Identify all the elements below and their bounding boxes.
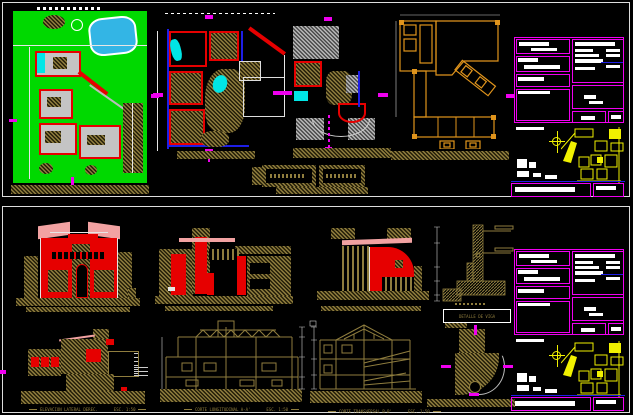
text-bar [575, 59, 603, 63]
bedroom [209, 31, 239, 61]
fence-elevation [319, 165, 365, 187]
text-bar [575, 49, 593, 52]
furniture [45, 131, 61, 143]
edge-line [369, 247, 370, 291]
info-box [572, 85, 624, 109]
window [250, 279, 270, 289]
text-bar [575, 271, 603, 275]
stair-rail [134, 367, 148, 379]
text-bar [518, 270, 538, 274]
roof-cap [331, 228, 355, 239]
deck-line [132, 103, 133, 173]
caption-text: ELEVACION LATERAL DEREC. [40, 407, 98, 412]
window-band [52, 252, 106, 259]
section-marker [378, 93, 388, 97]
newel-circle [469, 381, 481, 393]
road-hatch [11, 185, 149, 194]
side-wall [414, 266, 422, 291]
ground-line [26, 307, 130, 312]
detail-label: DETALLE DE VIGA [459, 314, 495, 319]
legend-mark [533, 173, 541, 177]
text-bar [606, 266, 620, 269]
title-block [509, 241, 629, 413]
text-bar [516, 339, 544, 342]
caption: CORTE TRANSVERSAL B-B' ESC. 1:50 [328, 409, 441, 414]
edge-line [117, 238, 118, 298]
text-bar [606, 65, 620, 68]
legend-mark [517, 385, 529, 391]
text-bar [606, 261, 620, 264]
divider-line [511, 395, 625, 396]
text-bar [606, 54, 620, 57]
caption-text: CORTE TRANSVERSAL B-B' [339, 409, 392, 414]
door [76, 264, 88, 298]
legend-mark [517, 171, 529, 177]
window-band [382, 277, 414, 291]
axis-marker [474, 325, 477, 335]
window-band [209, 249, 239, 260]
text-bar [581, 328, 595, 332]
planter [39, 163, 53, 174]
text-bar [606, 49, 620, 52]
text-bar [518, 58, 538, 62]
foundation-plan [394, 13, 512, 153]
caption-scale: ESC. 1:50 [408, 409, 430, 414]
beam-detail: DETALLE DE VIGA [431, 223, 518, 329]
furniture [47, 97, 61, 107]
legend-mark [545, 389, 557, 393]
ground-line [16, 298, 140, 306]
ground-strip [177, 151, 255, 159]
rear-elevation [151, 216, 298, 312]
text-bar [575, 279, 595, 282]
section-marker [71, 177, 74, 185]
text-bar [518, 303, 550, 306]
cad-drawing-canvas: DETALLE DE VIGA ELEVACION LATERAL DEREC.… [0, 0, 633, 415]
sheet-plans [2, 2, 630, 197]
window [168, 287, 175, 291]
text-bar [611, 327, 621, 331]
tree [43, 15, 65, 29]
roof-hatch [293, 26, 339, 59]
roof-edge [179, 238, 235, 242]
ground-strip [293, 148, 391, 158]
ground-floor-plan [157, 13, 291, 163]
wall-segment [248, 26, 286, 55]
legend-mark [545, 175, 557, 179]
ground-line [155, 296, 293, 304]
caption: CORTE LONGITUDINAL A-A' ESC. 1:50 [184, 407, 299, 412]
text-bar [581, 116, 595, 120]
signature-line [601, 274, 623, 275]
landing-hatch [459, 329, 485, 353]
centerline [328, 115, 330, 151]
window [41, 357, 49, 367]
longitudinal-section: CORTE LONGITUDINAL A-A' ESC. 1:50 [156, 319, 306, 415]
wall-hatch [48, 270, 68, 292]
window [250, 263, 270, 274]
plan-title-text [37, 7, 101, 10]
entry-steps [201, 131, 229, 147]
text-bar [575, 42, 615, 46]
ground-line [165, 306, 273, 311]
legend-mark [529, 376, 536, 382]
legend-mark [533, 387, 541, 391]
window-line [241, 31, 243, 61]
dimension-line [29, 47, 30, 179]
stair-detail [439, 329, 517, 401]
site-plan [9, 7, 151, 195]
text-bar [584, 307, 596, 311]
caption-scale: ESC. 1:50 [266, 407, 288, 412]
dimension-line [157, 31, 158, 151]
legend-mark [517, 373, 527, 382]
text-bar [596, 400, 616, 404]
section-marker [205, 15, 213, 19]
text-bar [575, 254, 615, 258]
sheet-elevations: DETALLE DE VIGA ELEVACION LATERAL DEREC.… [2, 206, 630, 413]
furniture [87, 135, 105, 145]
edge-line [40, 238, 41, 298]
window [395, 260, 403, 268]
caption: ELEVACION LATERAL DEREC. ESC. 1:50 [29, 407, 146, 412]
dimension-line [165, 13, 275, 14]
side-elevation [311, 216, 431, 312]
ground-line [317, 291, 429, 300]
front-elevation [16, 214, 140, 312]
location-map [561, 341, 627, 397]
lateral-elevation: ELEVACION LATERAL DEREC. ESC. 1:50 [11, 321, 151, 413]
text-bar [584, 95, 596, 99]
text-bar [515, 187, 575, 192]
fountain [71, 19, 83, 31]
text-bar [518, 77, 544, 81]
beam-detail-linework [431, 223, 518, 303]
bath-fixture [294, 91, 308, 101]
text-bar [515, 401, 575, 406]
location-map [561, 127, 627, 183]
axis-marker [469, 393, 479, 396]
text-bar [518, 91, 550, 94]
text-bar [524, 277, 560, 281]
furniture [53, 57, 67, 69]
text-bar [531, 48, 557, 51]
text-bar [524, 65, 560, 69]
bedroom [169, 109, 205, 145]
wall-hatch [94, 270, 114, 292]
planter [85, 165, 97, 175]
foundation-linework [394, 13, 512, 149]
text-bar [596, 186, 616, 190]
text-bar [611, 115, 621, 119]
roof-slab [235, 246, 291, 254]
scale-text [445, 323, 467, 328]
transversal-section: CORTE TRANSVERSAL B-B' ESC. 1:50 [306, 319, 430, 415]
text-bar [516, 127, 544, 130]
text-bar [589, 101, 603, 104]
ground-line [321, 306, 421, 311]
legend-mark [517, 159, 527, 168]
text-bar [606, 277, 620, 280]
bedroom [169, 71, 203, 105]
divider-line [511, 181, 625, 182]
water-fixture [37, 53, 45, 73]
section-marker [9, 119, 17, 122]
text-bar [575, 261, 593, 264]
section-marker [282, 91, 292, 95]
signature-line [601, 62, 623, 63]
caption-scale: ESC. 1:50 [114, 407, 136, 412]
swimming-pool [87, 15, 139, 58]
text-bar [519, 254, 549, 258]
window [106, 339, 114, 345]
title-block [509, 29, 629, 199]
room [294, 61, 322, 87]
planter [128, 288, 136, 298]
window [51, 357, 59, 367]
wall-hatch [247, 256, 291, 296]
caption-text: CORTE LONGITUDINAL A-A' [195, 407, 250, 412]
upper-floor-plan [284, 15, 400, 155]
dimension-line [13, 45, 147, 46]
fence-elevation [262, 165, 316, 187]
column [237, 256, 246, 295]
window [86, 349, 101, 362]
door [207, 273, 214, 295]
text-bar [519, 42, 549, 46]
window-line [358, 71, 360, 107]
text-bar [589, 313, 603, 316]
text-bar [575, 54, 599, 57]
legend-mark [529, 162, 536, 168]
fence-detail [270, 174, 306, 178]
roof-edge [50, 232, 108, 233]
roof-edge [342, 238, 412, 245]
terrace [243, 77, 285, 117]
window [31, 357, 39, 367]
colonnade [342, 246, 369, 293]
info-box [572, 297, 624, 321]
section-marker [0, 370, 6, 374]
section-marker [324, 17, 332, 21]
ground-line [21, 391, 145, 404]
detail-label-box: DETALLE DE VIGA [443, 309, 511, 323]
detail-note [455, 303, 485, 305]
section-marker [151, 94, 159, 98]
roof [38, 222, 70, 239]
fence-detail [326, 174, 356, 178]
deck-pergola [123, 103, 143, 173]
facade [195, 237, 207, 294]
text-bar [575, 266, 599, 269]
side-wall [24, 256, 38, 298]
fence-post [252, 167, 262, 185]
ground-strip [276, 187, 368, 194]
ground-strip [391, 151, 509, 160]
text-bar [575, 67, 595, 70]
axis-marker [441, 365, 451, 368]
dimension-line [284, 55, 285, 115]
ground-strip [427, 399, 515, 407]
text-bar [518, 289, 544, 293]
section-linework [306, 319, 430, 409]
text-bar [531, 260, 557, 263]
section-linework [156, 319, 306, 407]
